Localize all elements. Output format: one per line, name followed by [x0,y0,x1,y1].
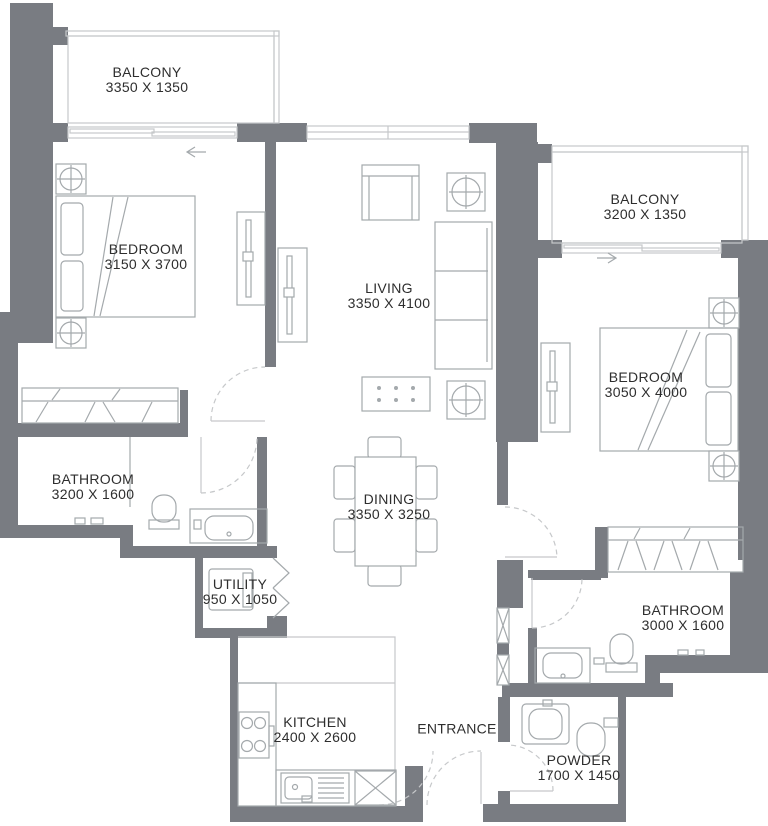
room-dims: 3350 X 4100 [348,296,431,311]
bedroom-left-door [211,367,265,421]
shower-head-icon [91,518,103,524]
entrance-door [379,751,481,805]
room-label-entrance: ENTRANCE [417,722,496,737]
nightstand-lamp-icon [709,298,739,328]
room-name: BATHROOM [642,603,725,618]
ceiling-light-icon [447,173,485,211]
bedroom-left-furniture [22,147,265,423]
balcony-sliding-door-left [68,127,237,138]
room-dims: 2400 X 2600 [274,730,357,745]
stove-icon [239,712,274,758]
bathroom-right-door [532,578,582,628]
room-name: BALCONY [604,192,687,207]
shower-head-icon [678,650,688,655]
shower-drain-icon [75,518,85,524]
tv-unit-icon [237,212,265,305]
room-name: BATHROOM [52,472,135,487]
floor-plan-drawing [0,0,768,826]
tv-unit-icon [278,248,307,342]
room-name: KITCHEN [274,715,357,730]
room-name: BALCONY [106,65,189,80]
room-label-kitchen: KITCHEN 2400 X 2600 [274,715,357,745]
room-dims: 3200 X 1350 [604,207,687,222]
floor-plan: BALCONY 3350 X 1350 BEDROOM 3150 X 3700 … [0,0,768,826]
balcony-sliding-door-right [562,243,721,253]
bathroom-left-door [201,437,257,493]
room-dims: 3150 X 3700 [105,257,188,272]
appliance-x-icon [355,771,396,805]
ceiling-light-icon [447,381,485,419]
room-name: UTILITY [203,577,278,592]
room-label-living: LIVING 3350 X 4100 [348,281,431,311]
sofa-icon [435,222,492,369]
coffee-table-icon [362,377,430,411]
room-label-dining: DINING 3350 X 3250 [348,492,431,522]
powder-fixtures [522,700,618,756]
bedroom-right-door [505,507,557,557]
dining-chair-icon [416,519,437,552]
nightstand-lamp-icon [56,164,86,194]
sliding-door-arrow-left-icon [187,147,206,157]
room-name: BEDROOM [105,242,188,257]
wardrobe-icon [22,388,178,423]
toilet-icon [577,718,618,756]
dining-chair-icon [368,565,401,586]
toilet-icon [606,634,637,672]
dining-chair-icon [368,437,401,458]
room-name: POWDER [538,753,621,768]
room-dims: 950 X 1050 [203,592,278,607]
room-name: BEDROOM [605,370,688,385]
tv-unit-icon [541,343,570,432]
room-dims: 3000 X 1600 [642,618,725,633]
room-dims: 3200 X 1600 [52,487,135,502]
armchair-icon [362,165,419,220]
room-name: DINING [348,492,431,507]
room-label-utility: UTILITY 950 X 1050 [203,577,278,607]
bedroom-right-furniture [541,253,743,572]
kitchen-sink-icon [281,773,349,803]
room-label-bathroom-right: BATHROOM 3000 X 1600 [642,603,725,633]
shower-drain-icon [696,650,704,655]
nightstand-lamp-icon [56,318,86,348]
sliding-door-arrow-right-icon [597,253,616,263]
shaft-x-icon [497,608,509,643]
toilet-icon [149,495,179,529]
faucet-icon [594,658,604,664]
room-dims: 3050 X 4000 [605,385,688,400]
wardrobe-icon [608,527,743,572]
room-label-powder: POWDER 1700 X 1450 [538,753,621,783]
vanity-sink-icon [190,509,267,543]
windows [68,126,721,253]
room-dims: 3350 X 1350 [106,80,189,95]
room-label-bathroom-left: BATHROOM 3200 X 1600 [52,472,135,502]
sink-icon [522,700,569,744]
room-label-bedroom-left: BEDROOM 3150 X 3700 [105,242,188,272]
vanity-sink-icon [535,648,590,683]
dining-chair-icon [334,519,355,552]
room-label-balcony-right: BALCONY 3200 X 1350 [604,192,687,222]
room-label-balcony-top-left: BALCONY 3350 X 1350 [106,65,189,95]
room-name: ENTRANCE [417,722,496,737]
living-window [307,126,469,139]
room-dims: 3350 X 3250 [348,507,431,522]
shaft-x-icon [497,655,509,685]
room-dims: 1700 X 1450 [538,768,621,783]
room-label-bedroom-right: BEDROOM 3050 X 4000 [605,370,688,400]
room-name: LIVING [348,281,431,296]
nightstand-lamp-icon [709,451,739,481]
